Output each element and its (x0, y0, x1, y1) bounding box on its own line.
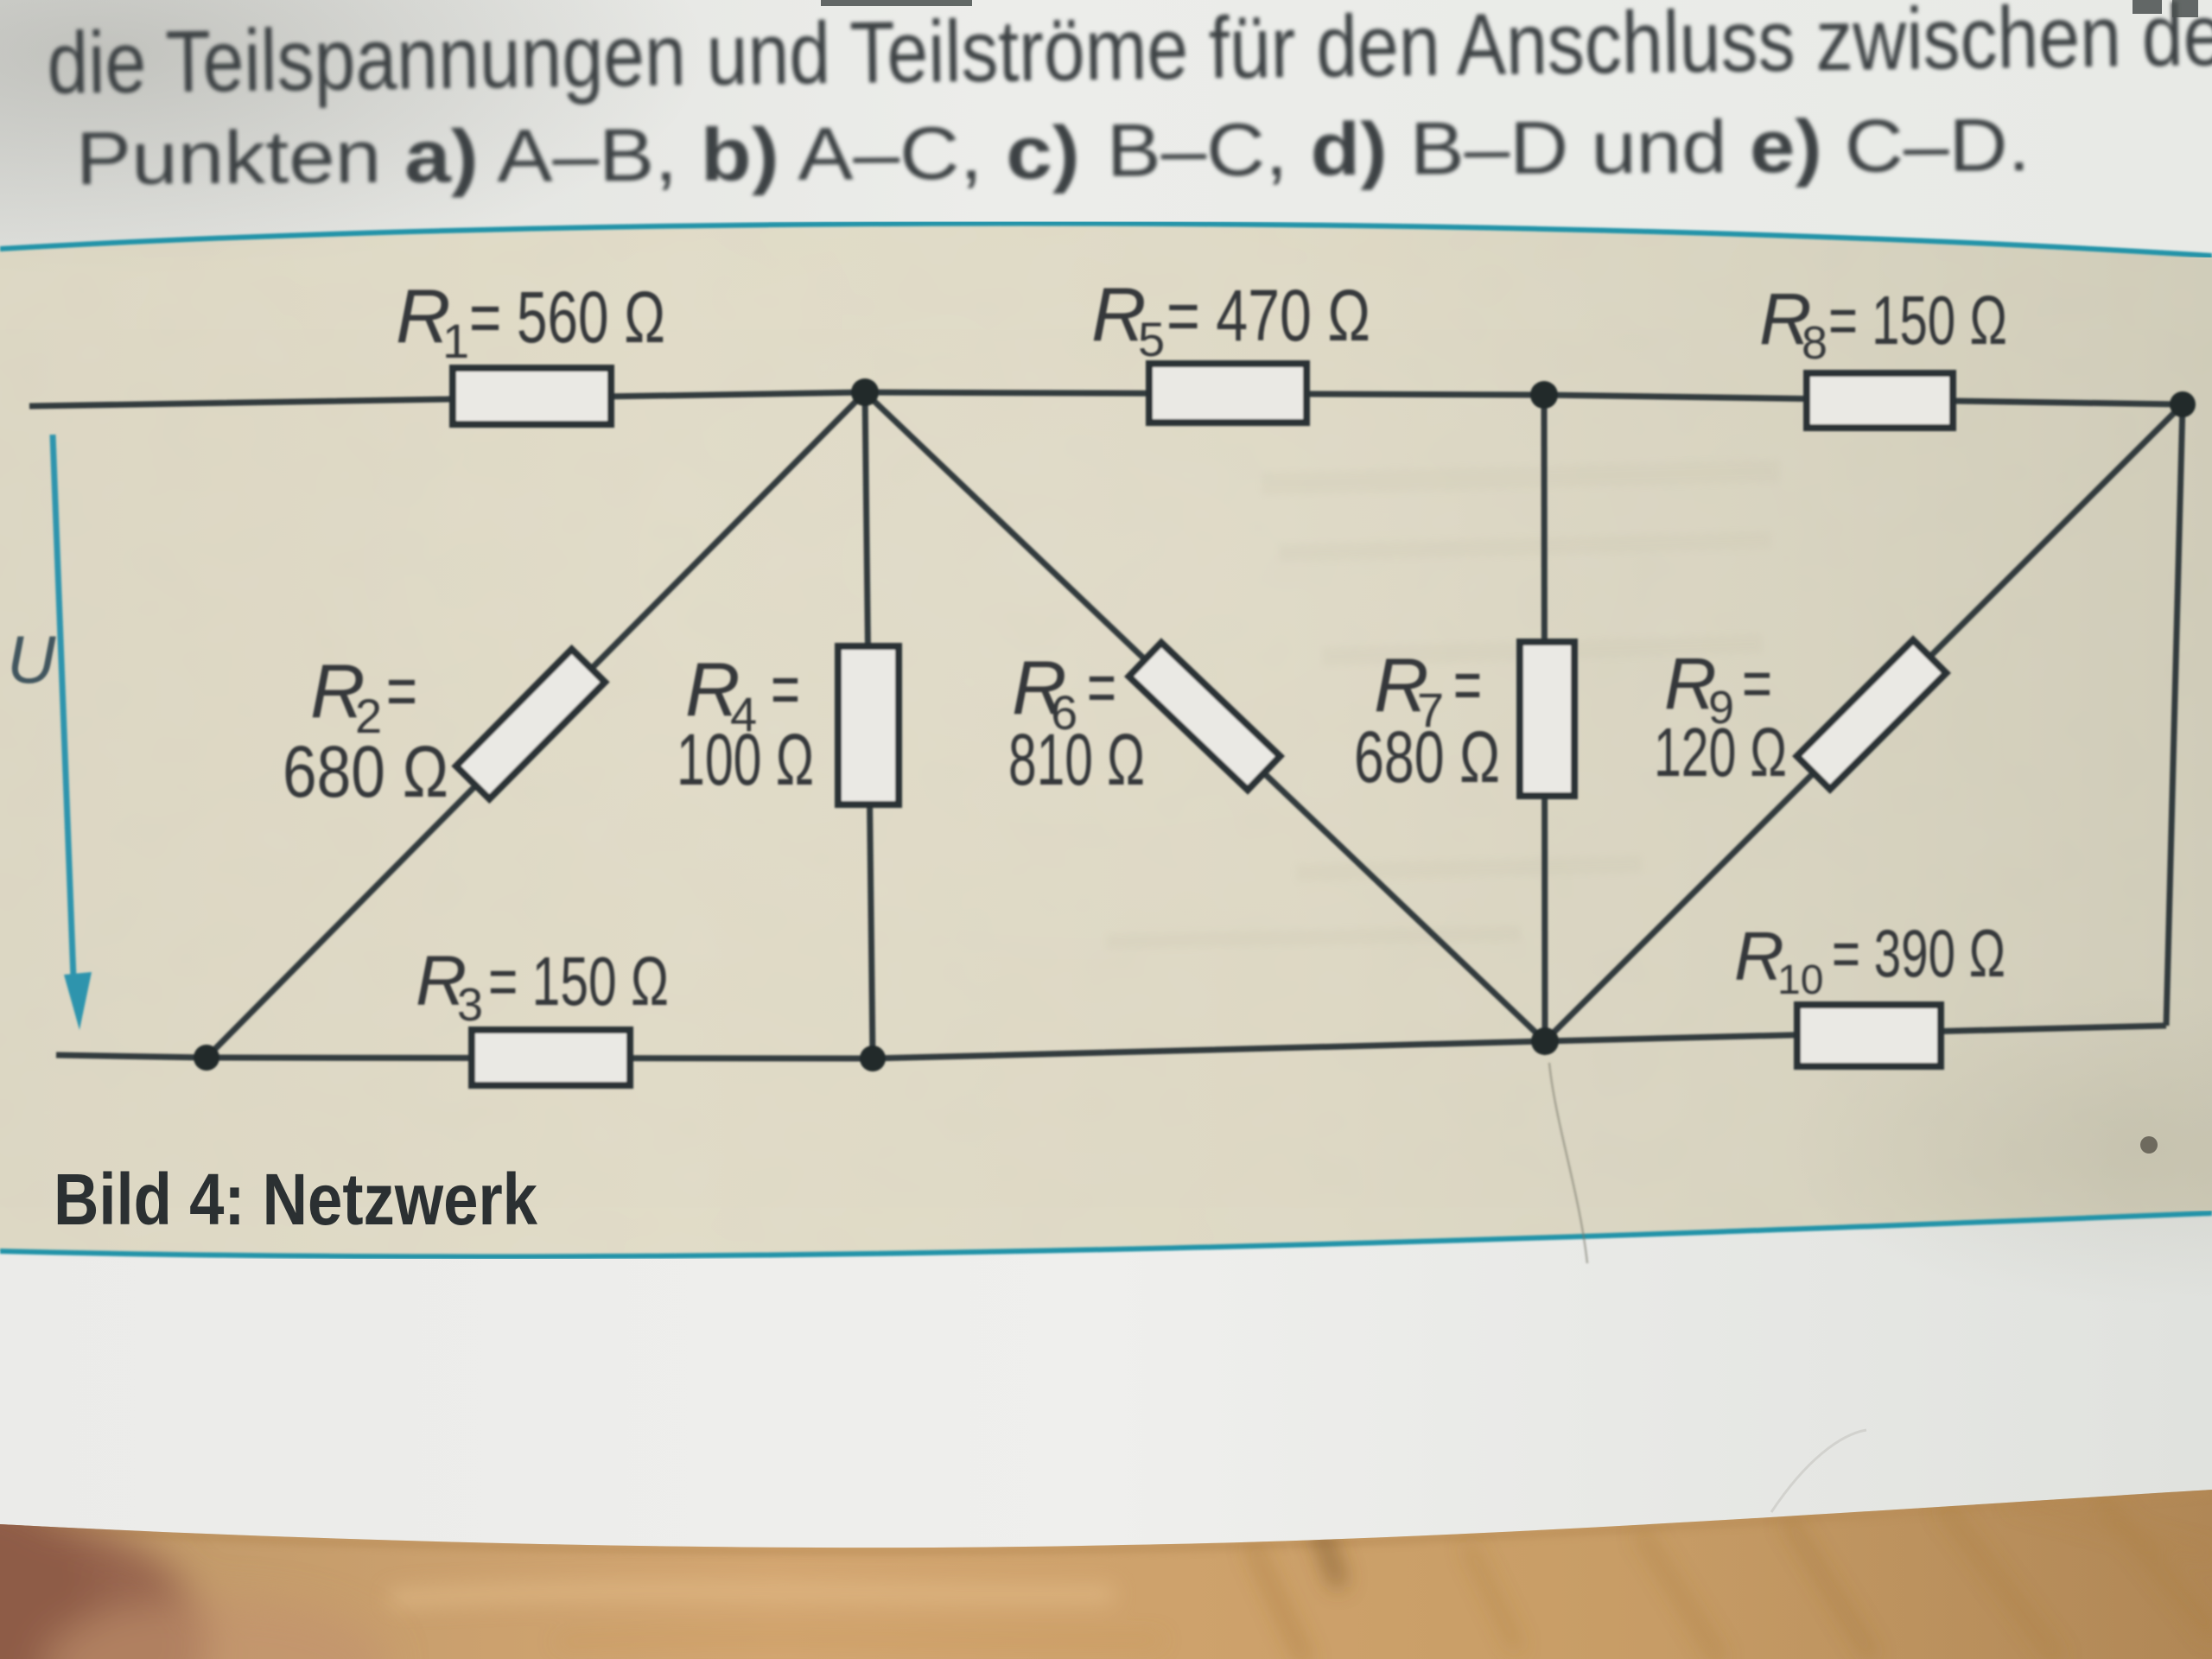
svg-text:=: = (1453, 644, 1482, 725)
svg-text:=: = (771, 648, 800, 729)
svg-text:=: = (1742, 645, 1772, 721)
svg-text:B–C, d) B–D und e) C–D.: B–C, d) B–D und e) C–D. (1106, 104, 2031, 193)
svg-text:5: 5 (1138, 312, 1165, 366)
svg-text:= 470 Ω: = 470 Ω (1166, 275, 1370, 356)
svg-text:8: 8 (1802, 317, 1827, 369)
svg-text:1: 1 (442, 314, 469, 368)
svg-text:=: = (1087, 646, 1116, 728)
svg-text:120 Ω: 120 Ω (1654, 714, 1787, 791)
svg-text:= 560 Ω: = 560 Ω (469, 276, 665, 358)
svg-text:810 Ω: 810 Ω (1008, 719, 1145, 800)
svg-text:100 Ω: 100 Ω (677, 719, 814, 800)
svg-text:Punkten a) A–B, b) A–C, c): Punkten a) A–B, b) A–C, c) (76, 111, 1081, 200)
svg-text:680 Ω: 680 Ω (283, 731, 448, 812)
svg-text:= 150 Ω: = 150 Ω (1828, 282, 2007, 359)
svg-text:= 150 Ω: = 150 Ω (488, 943, 669, 1020)
svg-text:U: U (7, 621, 56, 697)
svg-text:10: 10 (1777, 957, 1823, 1003)
svg-text:=: = (386, 650, 417, 731)
svg-text:= 390 Ω: = 390 Ω (1832, 915, 2005, 991)
svg-text:680 Ω: 680 Ω (1354, 716, 1500, 798)
svg-text:Bild 4: Netzwerk: Bild 4: Netzwerk (54, 1159, 537, 1240)
svg-text:3: 3 (457, 979, 483, 1031)
